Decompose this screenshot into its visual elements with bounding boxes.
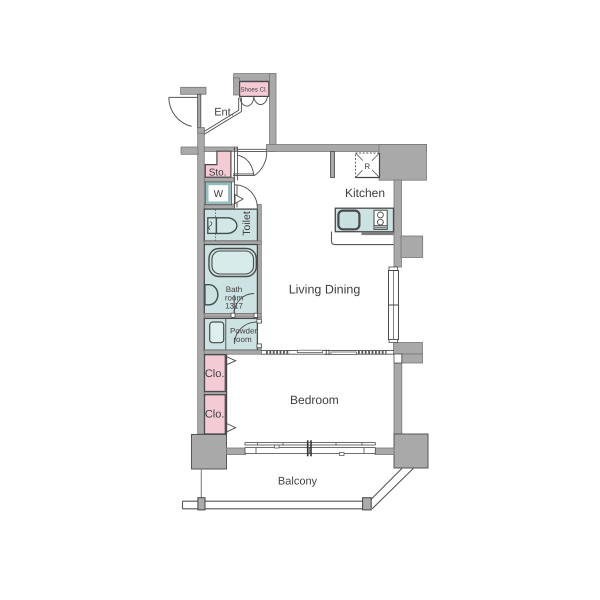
svg-text:Ent.: Ent. [214, 106, 234, 118]
svg-text:Toilet: Toilet [241, 211, 253, 236]
svg-text:Shoes Cl.: Shoes Cl. [240, 87, 267, 94]
svg-text:W: W [214, 189, 224, 200]
svg-text:Clo.: Clo. [205, 409, 225, 421]
svg-text:Balcony: Balcony [278, 476, 318, 488]
svg-text:Sto.: Sto. [209, 168, 227, 179]
svg-text:R: R [364, 162, 370, 171]
svg-text:Clo.: Clo. [205, 368, 225, 380]
svg-text:Bedroom: Bedroom [290, 393, 339, 407]
svg-text:Kitchen: Kitchen [345, 186, 385, 200]
svg-text:Living Dining: Living Dining [289, 283, 361, 297]
